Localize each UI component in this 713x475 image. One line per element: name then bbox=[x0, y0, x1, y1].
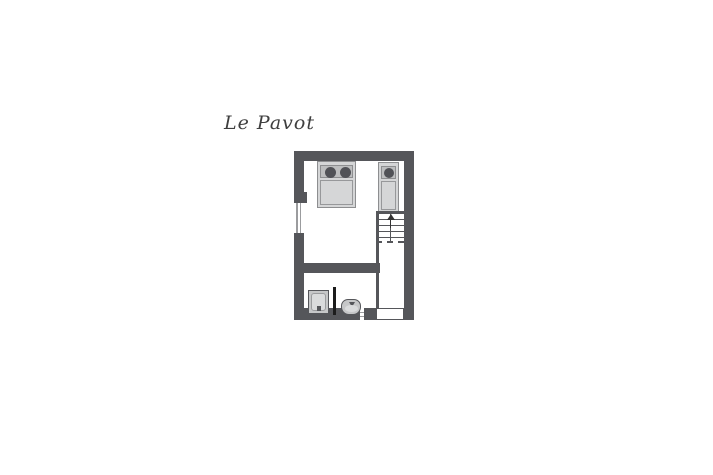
shower-drain bbox=[317, 306, 321, 311]
wall-pier bbox=[294, 192, 307, 203]
single-bed-icon bbox=[378, 162, 399, 213]
stair-tread bbox=[379, 231, 405, 232]
basin-bowl bbox=[345, 305, 358, 312]
interior-wall bbox=[304, 263, 380, 273]
stair-cut-line bbox=[376, 241, 404, 243]
bathroom-partition bbox=[376, 273, 379, 309]
pillow-icon bbox=[384, 168, 394, 178]
pillow-icon bbox=[340, 167, 351, 178]
washbasin-icon bbox=[341, 299, 361, 315]
wall-top bbox=[294, 151, 414, 161]
shower-icon bbox=[308, 290, 329, 314]
mattress bbox=[320, 180, 353, 205]
page-title: Le Pavot bbox=[224, 112, 315, 134]
floor-plan-page: Le Pavot bbox=[0, 0, 713, 475]
double-bed-icon bbox=[317, 161, 356, 208]
stair-tread bbox=[379, 225, 405, 226]
stair-tread bbox=[379, 237, 405, 238]
entry-door-icon bbox=[376, 308, 404, 320]
shower-screen-icon bbox=[333, 287, 336, 315]
mattress bbox=[381, 181, 396, 210]
up-arrow-shaft bbox=[390, 219, 391, 228]
window-icon bbox=[294, 203, 304, 233]
wall-right bbox=[404, 151, 414, 320]
floor-plan bbox=[294, 151, 414, 320]
pillow-icon bbox=[325, 167, 336, 178]
wall-left bbox=[294, 151, 304, 320]
